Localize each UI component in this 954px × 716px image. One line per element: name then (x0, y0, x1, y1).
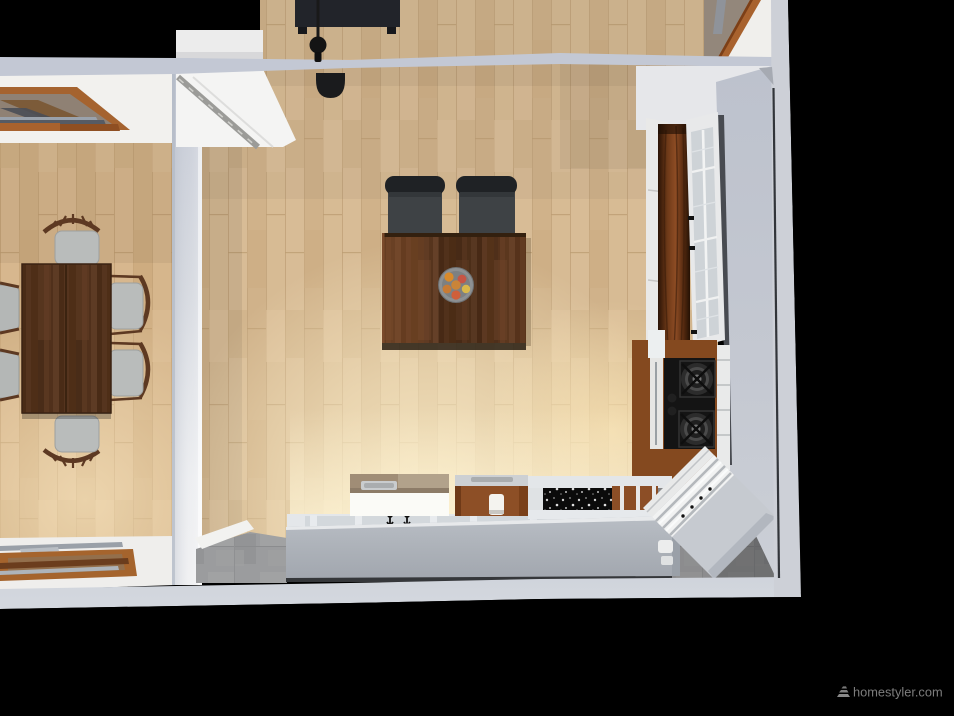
svg-text:homestyler.com: homestyler.com (853, 685, 943, 700)
